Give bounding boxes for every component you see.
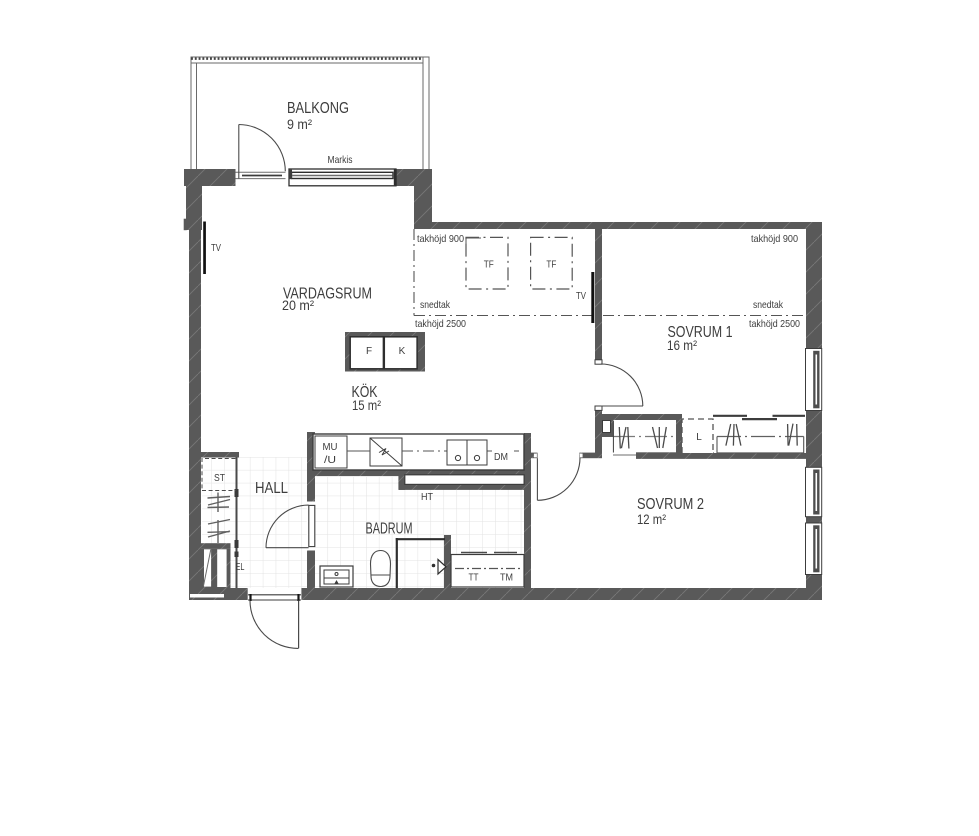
svg-text:takhöjd 2500: takhöjd 2500	[415, 318, 466, 330]
svg-text:BALKONG: BALKONG	[287, 100, 349, 117]
svg-text:TF: TF	[546, 260, 556, 271]
svg-text:MU: MU	[323, 442, 338, 453]
svg-text:BADRUM: BADRUM	[366, 521, 413, 538]
svg-text:9 m²: 9 m²	[287, 116, 312, 132]
svg-text:15 m²: 15 m²	[352, 397, 381, 413]
svg-text:TV: TV	[576, 291, 586, 302]
svg-text:16 m²: 16 m²	[667, 337, 697, 353]
svg-text:takhöjd 2500: takhöjd 2500	[749, 318, 800, 330]
svg-text:EL: EL	[236, 562, 245, 573]
svg-text:/U: /U	[324, 455, 336, 466]
svg-text:20 m²: 20 m²	[282, 297, 314, 313]
svg-text:TV: TV	[211, 243, 221, 254]
svg-text:TM: TM	[500, 573, 513, 584]
svg-text:ST: ST	[214, 473, 225, 484]
svg-text:takhöjd 900: takhöjd 900	[751, 233, 798, 245]
svg-text:TF: TF	[484, 260, 494, 271]
svg-text:HALL: HALL	[255, 480, 288, 497]
svg-text:takhöjd 900: takhöjd 900	[417, 233, 464, 245]
svg-text:snedtak: snedtak	[753, 299, 784, 311]
svg-text:TT: TT	[469, 573, 479, 584]
svg-text:DM: DM	[494, 452, 508, 463]
svg-text:L: L	[696, 432, 702, 443]
svg-text:snedtak: snedtak	[420, 299, 451, 311]
svg-text:12 m²: 12 m²	[637, 511, 666, 527]
svg-text:Markis: Markis	[328, 154, 353, 166]
svg-text:HT: HT	[421, 492, 433, 503]
svg-text:K: K	[399, 346, 406, 357]
svg-text:F: F	[366, 346, 372, 357]
